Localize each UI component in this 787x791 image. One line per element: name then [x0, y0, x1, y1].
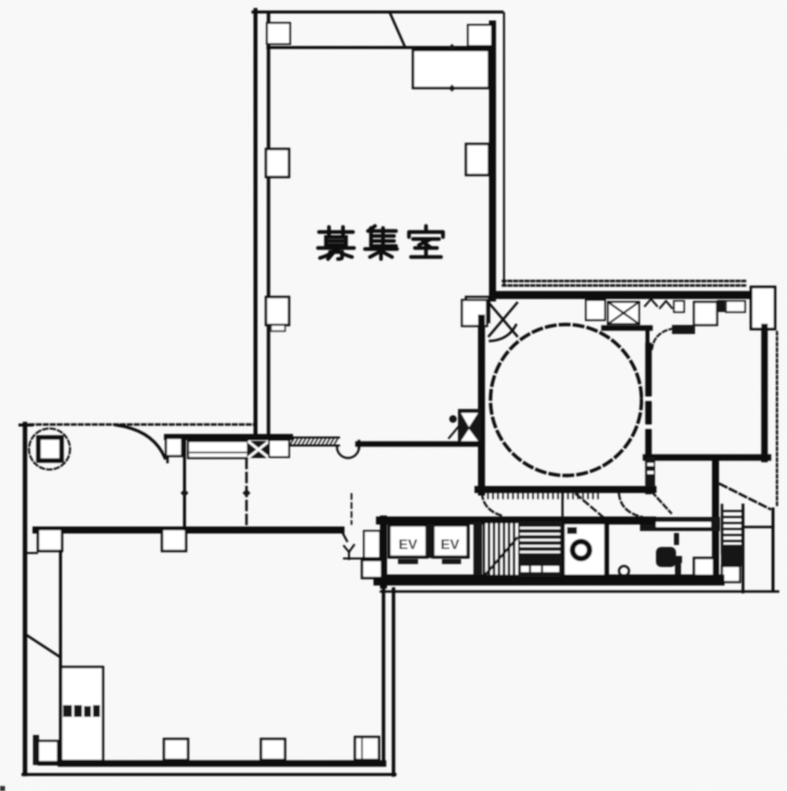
- svg-text:EV: EV: [441, 536, 460, 552]
- svg-text:EV: EV: [399, 536, 418, 552]
